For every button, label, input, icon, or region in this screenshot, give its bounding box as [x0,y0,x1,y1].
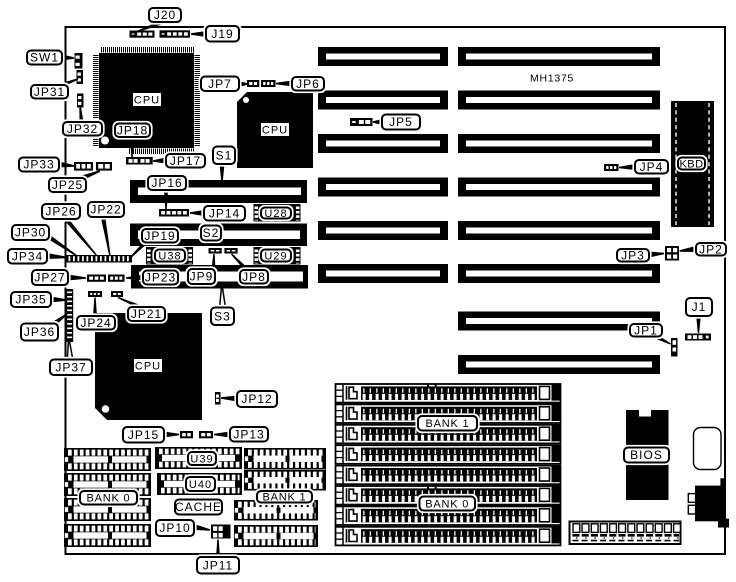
svg-text:JP32: JP32 [67,122,98,136]
svg-text:BANK 0: BANK 0 [87,493,131,505]
svg-text:JP5: JP5 [389,115,413,129]
svg-text:CPU: CPU [134,95,160,107]
svg-text:JP7: JP7 [208,77,232,91]
svg-text:JP33: JP33 [23,158,54,172]
svg-text:JP4: JP4 [640,160,664,174]
svg-text:CPU: CPU [135,361,161,373]
svg-text:JP31: JP31 [34,85,65,99]
svg-text:KBD: KBD [679,158,703,170]
svg-text:JP8: JP8 [242,270,266,284]
svg-text:JP23: JP23 [145,271,176,285]
svg-text:J20: J20 [154,8,176,22]
svg-text:U29: U29 [264,250,287,262]
svg-text:JP6: JP6 [296,77,320,91]
svg-text:JP27: JP27 [34,271,65,285]
svg-text:JP30: JP30 [15,226,46,240]
svg-text:JP1: JP1 [634,323,658,337]
svg-text:JP12: JP12 [241,392,272,406]
svg-text:S3: S3 [214,309,231,323]
svg-text:JP24: JP24 [80,316,111,330]
svg-text:JP3: JP3 [621,248,645,262]
svg-text:JP19: JP19 [144,229,175,243]
svg-text:JP17: JP17 [170,154,201,168]
svg-text:J1: J1 [692,300,707,314]
svg-text:JP25: JP25 [52,178,83,192]
svg-text:U28: U28 [264,208,287,220]
svg-text:JP22: JP22 [90,203,121,217]
svg-text:U39: U39 [190,453,213,465]
svg-text:JP9: JP9 [190,270,214,284]
svg-text:JP18: JP18 [117,123,148,137]
svg-text:JP11: JP11 [203,558,233,572]
svg-text:S1: S1 [216,148,233,162]
svg-text:JP35: JP35 [15,293,46,307]
svg-text:JP37: JP37 [55,360,86,374]
svg-text:J19: J19 [211,27,233,41]
svg-text:JP34: JP34 [12,249,43,263]
svg-text:CPU: CPU [262,125,288,137]
svg-text:BANK 0: BANK 0 [425,498,469,510]
svg-text:MH1375: MH1375 [530,73,574,85]
svg-text:JP21: JP21 [131,307,162,321]
svg-text:U40: U40 [189,479,212,491]
svg-text:JP13: JP13 [233,427,264,441]
svg-text:JP2: JP2 [699,242,723,256]
svg-text:JP10: JP10 [159,521,190,535]
svg-text:JP36: JP36 [24,325,55,339]
svg-text:CACHE: CACHE [175,500,222,514]
svg-text:S2: S2 [203,226,220,240]
svg-text:BANK 1: BANK 1 [426,418,470,430]
svg-text:JP15: JP15 [128,428,159,442]
svg-text:JP16: JP16 [151,176,182,190]
svg-text:SW1: SW1 [30,51,59,65]
svg-text:U38: U38 [158,250,181,262]
svg-text:JP14: JP14 [209,206,240,220]
svg-text:JP26: JP26 [45,205,76,219]
svg-text:BIOS: BIOS [630,448,663,462]
svg-text:BANK 1: BANK 1 [263,492,307,504]
